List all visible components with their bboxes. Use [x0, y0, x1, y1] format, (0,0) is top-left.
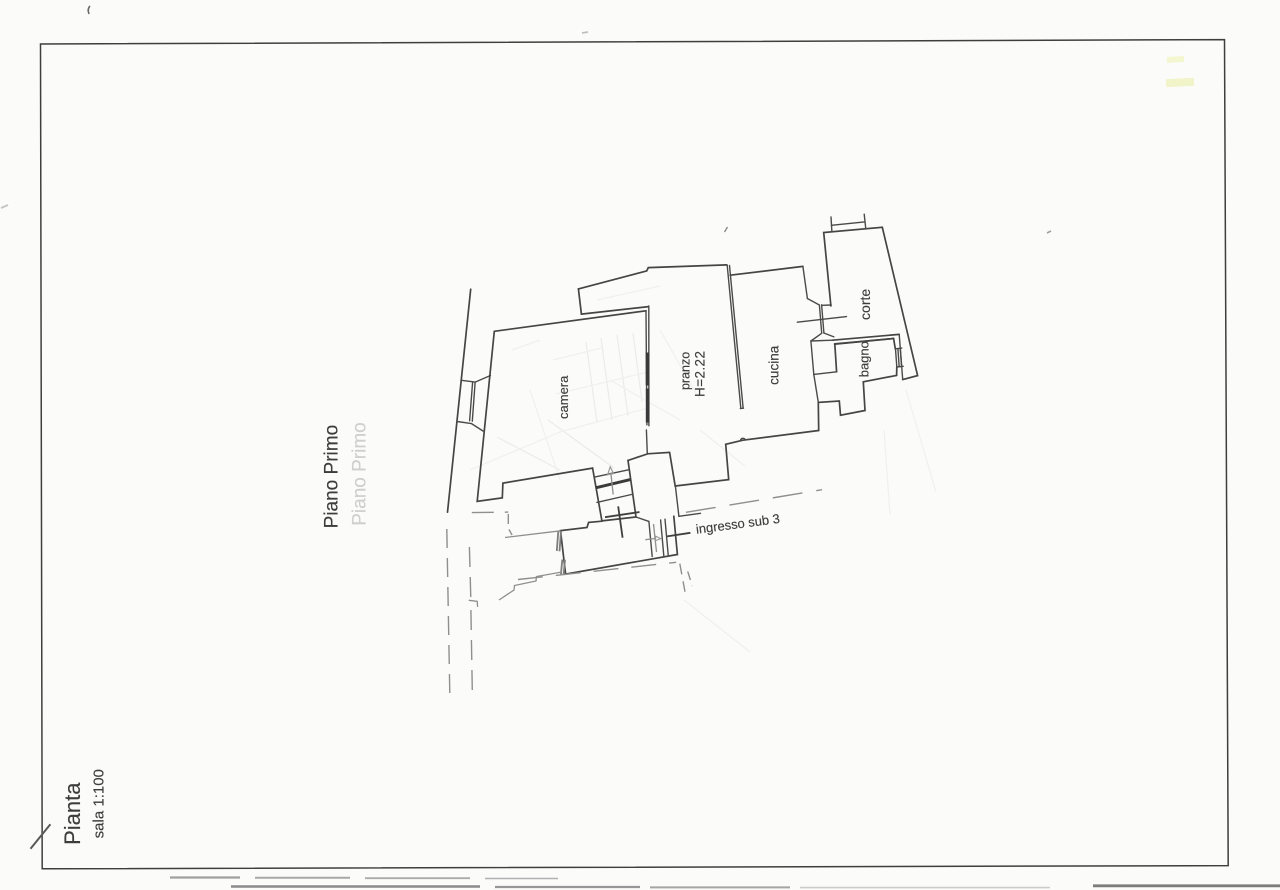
svg-text:Piano Primo: Piano Primo — [322, 425, 343, 528]
svg-text:H=2.22: H=2.22 — [693, 351, 708, 397]
svg-text:cucina: cucina — [767, 345, 782, 385]
svg-text:Piano Primo: Piano Primo — [350, 422, 371, 526]
svg-text:corte: corte — [857, 289, 873, 320]
svg-text:bagno: bagno — [857, 341, 872, 377]
svg-text:sala 1:100: sala 1:100 — [91, 769, 108, 838]
svg-text:pranzo: pranzo — [679, 352, 693, 390]
svg-text:Pianta: Pianta — [60, 782, 85, 845]
svg-text:camera: camera — [556, 375, 571, 419]
